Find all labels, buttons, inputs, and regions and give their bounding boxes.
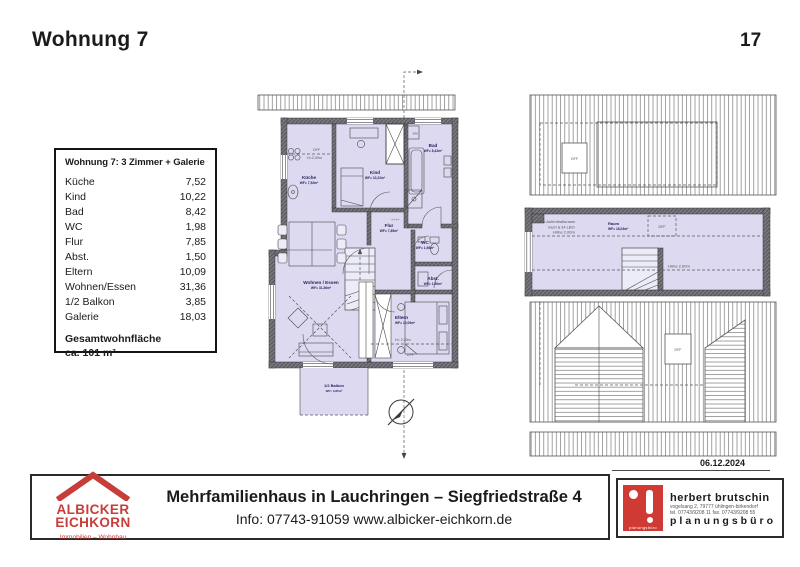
planner-type: planungsbüro — [670, 518, 776, 525]
row-label: Bad — [65, 205, 84, 220]
area-table-total: Gesamtwohnfläche ca. 101 m² — [65, 332, 206, 360]
svg-text:WF= 31,36m²: WF= 31,36m² — [311, 286, 332, 290]
chair-icon — [278, 225, 287, 235]
planner-name: herbert brutschin — [670, 492, 776, 504]
svg-text:WF= 18,03m²: WF= 18,03m² — [608, 227, 629, 231]
row-label: WC — [65, 220, 83, 235]
planner-logo-icon: planungsbüro — [623, 485, 663, 531]
total-value: ca. 101 m² — [65, 346, 206, 360]
plan-date: 06.12.2024 — [700, 458, 745, 468]
row-value: 10,09 — [180, 265, 206, 280]
north-symbol-icon — [388, 399, 414, 425]
svg-text:WF= 1,98m²: WF= 1,98m² — [416, 246, 435, 250]
room-label-balkon: 1/2 Balkon — [324, 383, 345, 388]
row-value: 7,85 — [186, 235, 206, 250]
svg-text:WF= 7,85m²: WF= 7,85m² — [380, 229, 399, 233]
row-label: Küche — [65, 175, 95, 190]
row-value: 31,36 — [180, 280, 206, 295]
row-label: Eltern — [65, 265, 92, 280]
svg-text:WF= 8,42m²: WF= 8,42m² — [424, 149, 443, 153]
room-label-kueche: Küche — [302, 175, 316, 180]
row-value: 1,98 — [186, 220, 206, 235]
section-arrow-icon — [417, 70, 423, 75]
row-value: 3,85 — [186, 295, 206, 310]
agency-name-line1: ALBICKER — [32, 503, 154, 516]
area-table: Wohnung 7: 3 Zimmer + Galerie Küche7,52 … — [54, 148, 217, 353]
room-label-abst: Abst. — [427, 276, 438, 281]
page-number: 17 — [740, 30, 761, 52]
row-label: 1/2 Balkon — [65, 295, 115, 310]
table-row: Wohnen/Essen31,36 — [65, 280, 206, 295]
svg-text:WF= 10,09m²: WF= 10,09m² — [395, 321, 416, 325]
row-value: 1,50 — [186, 250, 206, 265]
project-contact: Info: 07743-91059 www.albicker-eichkorn.… — [154, 511, 594, 527]
wm-label: WM — [413, 132, 419, 136]
project-title: Mehrfamilienhaus in Lauchringen – Siegfr… — [154, 488, 594, 507]
room-label-bad: Bad — [429, 143, 438, 148]
room-label-wc: WC — [421, 240, 429, 245]
note-line1: kein Aufenthaltsraum — [538, 219, 576, 224]
svg-text:WF= 3,85m²: WF= 3,85m² — [326, 389, 343, 393]
dff-label: DFF — [571, 157, 579, 161]
row-label: Abst. — [65, 250, 89, 265]
dff-label: DFF — [313, 148, 321, 152]
stair — [622, 248, 658, 290]
shaft — [386, 124, 404, 164]
room-label-flur: Flur — [385, 223, 394, 228]
table-row: WC1,98 — [65, 220, 206, 235]
planner-details: herbert brutschin vogelsang 2, 79777 ühl… — [670, 492, 776, 525]
table-row: Abst.1,50 — [65, 250, 206, 265]
project-info: Mehrfamilienhaus in Lauchringen – Siegfr… — [154, 488, 608, 527]
height-label: Höhe 2,00m — [553, 230, 575, 235]
gallery-room: kein Aufenthaltsraum nach § 34 LBO Raum … — [525, 208, 770, 296]
window — [525, 232, 532, 272]
plan-sheet: Wohnung 7 17 Wohnung 7: 3 Zimmer + Galer… — [0, 0, 800, 567]
room-label-eltern: Eltern — [395, 315, 408, 320]
height-label: H= 2,00m — [395, 338, 411, 342]
gallery-floor-plan: DFF kein Aufenthaltsr — [518, 80, 788, 465]
row-label: Wohnen/Essen — [65, 280, 136, 295]
height-label: H=2,00m — [307, 156, 322, 160]
date-underline — [612, 470, 770, 471]
row-value: 8,42 — [186, 205, 206, 220]
room-label-galerie: Raum — [608, 221, 620, 226]
table-row: Flur7,85 — [65, 235, 206, 250]
table-row: Eltern10,09 — [65, 265, 206, 280]
radiator-label: ++++ — [391, 218, 399, 222]
footer: ALBICKER EICHKORN Immobilien – Wohnbau M… — [30, 474, 610, 540]
svg-text:WF= 10,22m²: WF= 10,22m² — [365, 176, 386, 180]
row-value: 7,52 — [186, 175, 206, 190]
dff-label: DFF — [675, 348, 683, 352]
total-label: Gesamtwohnfläche — [65, 332, 206, 346]
row-value: 10,22 — [180, 190, 206, 205]
agency-name-line2: EICHKORN — [32, 516, 154, 529]
agency-tagline: Immobilien – Wohnbau — [32, 531, 154, 544]
svg-text:WF= 7,52m²: WF= 7,52m² — [300, 181, 319, 185]
room-label-kind: Kind — [370, 170, 380, 175]
row-label: Galerie — [65, 310, 99, 325]
row-label: Flur — [65, 235, 83, 250]
table-row: Bad8,42 — [65, 205, 206, 220]
row-value: 18,03 — [180, 310, 206, 325]
roof-edge-band — [258, 95, 455, 110]
agency-logo: ALBICKER EICHKORN Immobilien – Wohnbau — [32, 471, 154, 544]
main-floor-plan: Küche WF= 7,52m² DFF H=2,00m Kind WF= 10… — [255, 60, 475, 460]
height-label: Höhe 2,00m — [668, 264, 690, 269]
upper-roof: DFF — [530, 95, 776, 195]
table-row: 1/2 Balkon3,85 — [65, 295, 206, 310]
area-table-title: Wohnung 7: 3 Zimmer + Galerie — [65, 157, 206, 168]
page-title: Wohnung 7 — [32, 28, 149, 52]
planner-logo-text: planungsbüro — [623, 525, 663, 530]
table-row: Kind10,22 — [65, 190, 206, 205]
svg-text:WF= 1,50m²: WF= 1,50m² — [424, 282, 443, 286]
table-row: Galerie18,03 — [65, 310, 206, 325]
lower-roof: DFF — [530, 302, 776, 456]
roof-icon — [50, 471, 136, 501]
room-label-wohnen: Wohnen / Essen — [303, 280, 339, 285]
dff-label: DFF — [407, 353, 415, 357]
planner-stamp: planungsbüro herbert brutschin vogelsang… — [616, 478, 784, 538]
dff-label: DFF — [659, 225, 667, 229]
table-row: Küche7,52 — [65, 175, 206, 190]
row-label: Kind — [65, 190, 86, 205]
